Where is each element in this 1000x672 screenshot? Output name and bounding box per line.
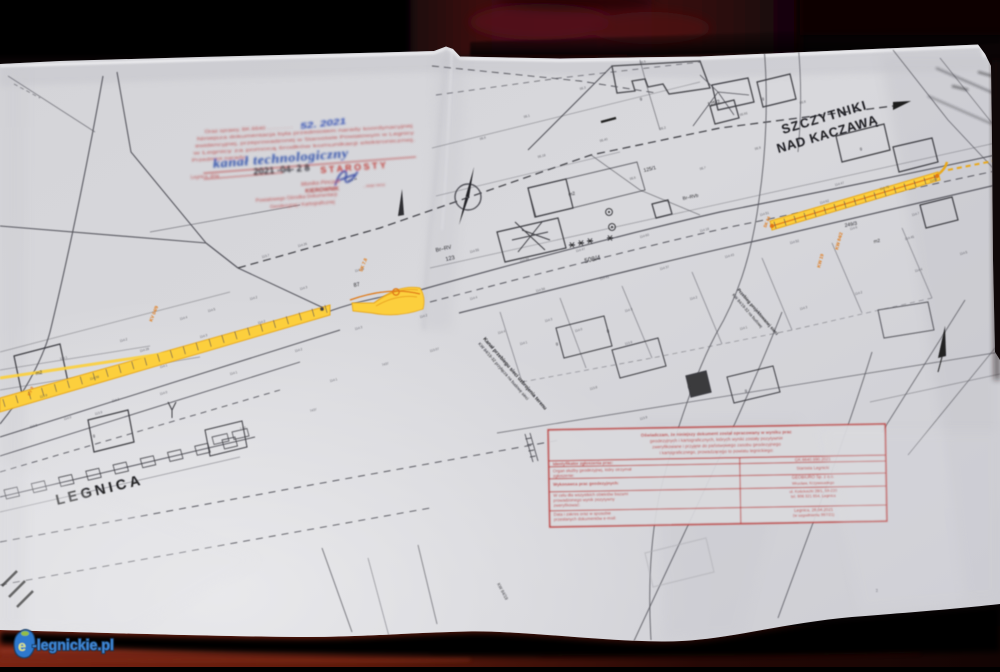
svg-text:zweryfikować:: zweryfikować: — [553, 502, 580, 508]
svg-text:zgłoszenie:: zgłoszenie: — [553, 473, 575, 478]
svg-text:tel. 606 321 654, Legnica: tel. 606 321 654, Legnica — [791, 493, 837, 499]
svg-text:GK.6640.990.2021: GK.6640.990.2021 — [795, 456, 832, 462]
svg-text:e: e — [18, 639, 26, 655]
svg-text:(w uzgodnieniu 997/21): (w uzgodnieniu 997/21) — [793, 512, 835, 518]
svg-text:Wrocław, Krzywoustego: Wrocław, Krzywoustego — [792, 480, 835, 486]
svg-text:-legnickie.pl: -legnickie.pl — [32, 638, 114, 654]
svg-text:Starosta Legnicki: Starosta Legnicki — [796, 465, 829, 471]
svg-text:GEOBIURO Sp. z o.o.: GEOBIURO Sp. z o.o. — [792, 474, 835, 480]
svg-text:87: 87 — [353, 282, 360, 289]
